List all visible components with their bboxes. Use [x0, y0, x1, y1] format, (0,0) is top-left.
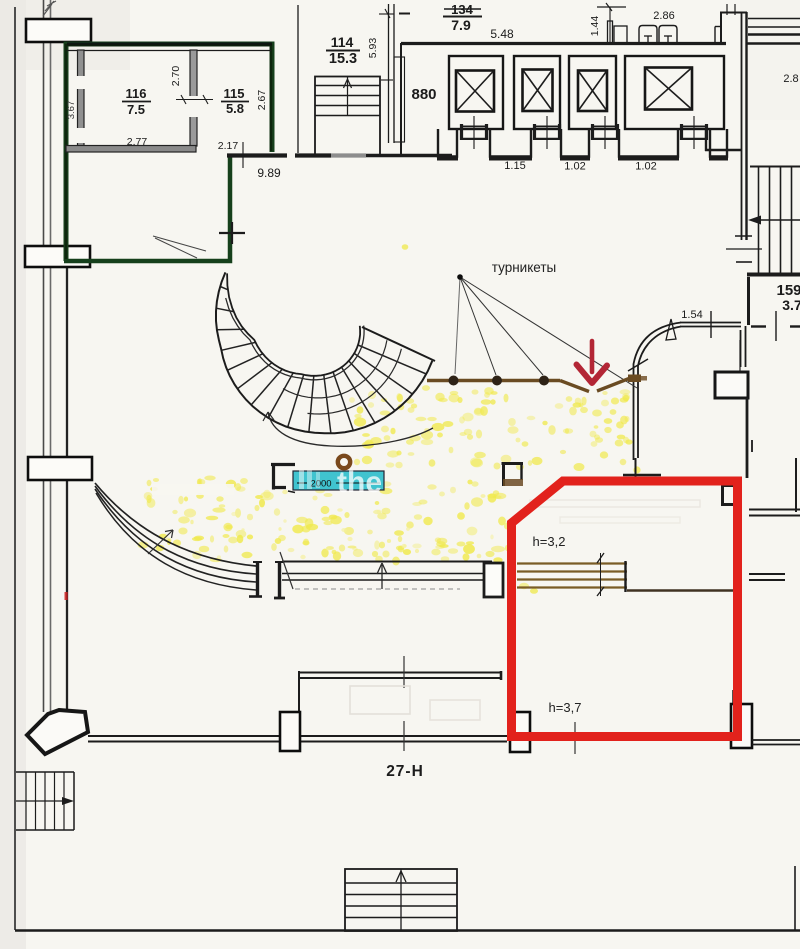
svg-text:2.8: 2.8	[783, 73, 798, 85]
svg-text:5.8: 5.8	[226, 101, 244, 116]
svg-text:2.67: 2.67	[256, 90, 268, 111]
svg-text:1.54: 1.54	[681, 309, 702, 321]
svg-text:7.9: 7.9	[451, 17, 471, 33]
svg-text:115: 115	[224, 86, 245, 101]
svg-text:2000: 2000	[310, 479, 331, 490]
svg-text:2.70: 2.70	[170, 66, 182, 87]
svg-text:3.67: 3.67	[66, 101, 77, 120]
svg-text:880: 880	[411, 86, 436, 103]
svg-text:1.02: 1.02	[564, 161, 585, 173]
svg-text:1.02: 1.02	[635, 161, 656, 173]
svg-text:3.7: 3.7	[782, 297, 800, 313]
svg-text:h=3,2: h=3,2	[533, 534, 566, 549]
svg-text:116: 116	[126, 86, 147, 101]
svg-text:h=3,7: h=3,7	[549, 700, 582, 715]
svg-text:7.5: 7.5	[127, 102, 145, 117]
svg-text:2.86: 2.86	[653, 10, 674, 22]
svg-text:1.44: 1.44	[589, 16, 601, 37]
svg-text:турникеты: турникеты	[492, 260, 556, 275]
svg-text:5.93: 5.93	[367, 38, 379, 59]
svg-text:15.3: 15.3	[329, 51, 357, 67]
svg-text:114: 114	[331, 34, 354, 50]
svg-text:9.89: 9.89	[257, 166, 281, 180]
svg-text:1.15: 1.15	[504, 160, 525, 172]
svg-text:5.48: 5.48	[490, 27, 514, 41]
svg-text:2.77: 2.77	[127, 136, 148, 148]
svg-text:27-Н: 27-Н	[386, 763, 424, 780]
svg-text:the: the	[337, 466, 382, 499]
svg-text:2.17: 2.17	[218, 140, 239, 152]
